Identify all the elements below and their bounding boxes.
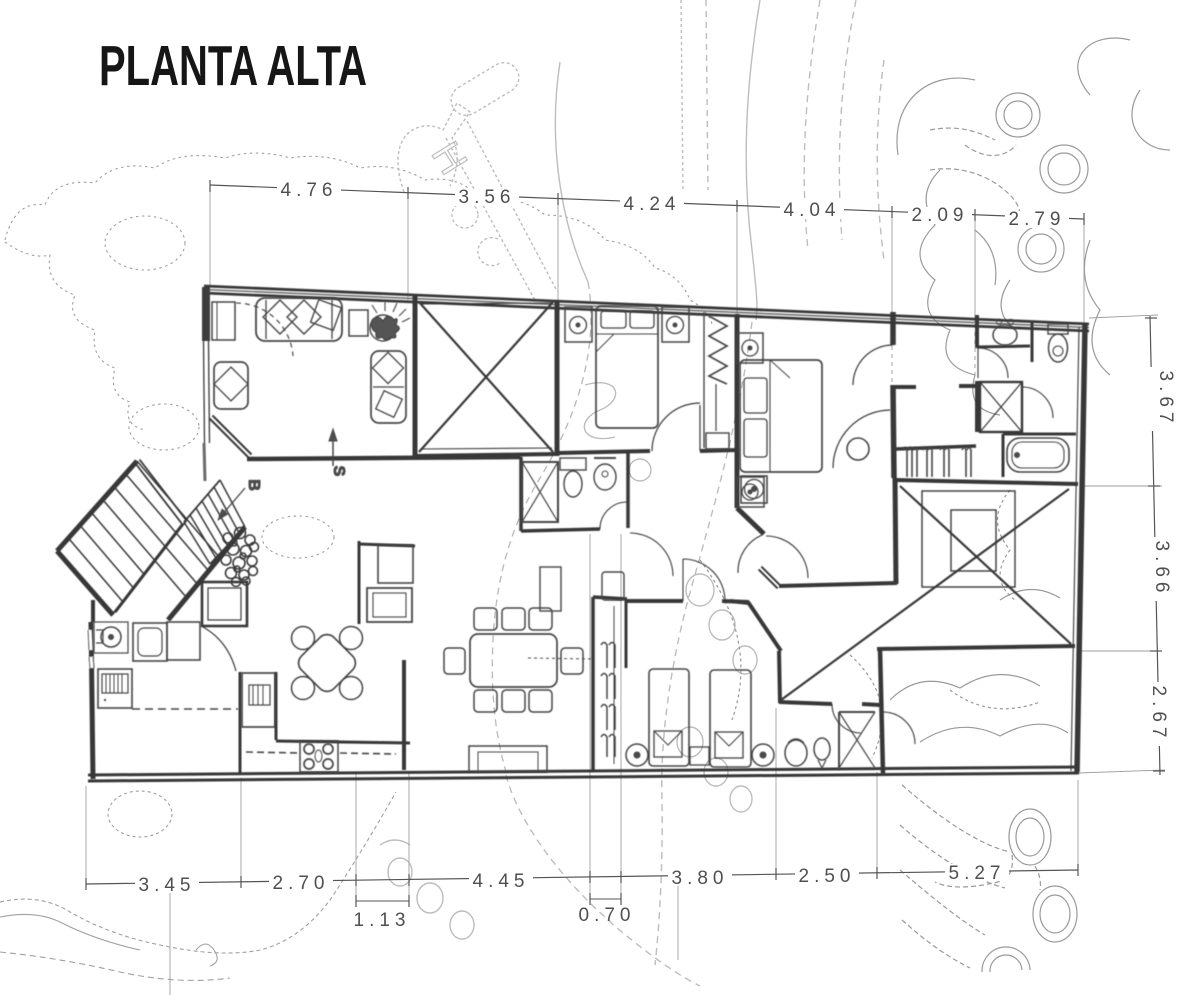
svg-text:PLANTA ALTA: PLANTA ALTA — [99, 34, 367, 98]
svg-text:2.09: 2.09 — [912, 205, 969, 226]
svg-text:4.04: 4.04 — [784, 200, 841, 221]
svg-text:2.79: 2.79 — [1009, 209, 1066, 230]
svg-text:1.13: 1.13 — [354, 910, 411, 931]
svg-text:3.56: 3.56 — [459, 187, 516, 208]
svg-text:3.67: 3.67 — [1155, 371, 1176, 428]
svg-text:2.50: 2.50 — [799, 866, 856, 887]
svg-text:3.66: 3.66 — [1151, 541, 1172, 598]
svg-text:0.70: 0.70 — [579, 905, 636, 926]
svg-text:4.45: 4.45 — [473, 871, 530, 892]
svg-text:2.67: 2.67 — [1148, 686, 1169, 743]
svg-text:5.27: 5.27 — [949, 863, 1006, 884]
svg-text:S: S — [330, 466, 347, 477]
svg-text:2.70: 2.70 — [273, 873, 330, 894]
svg-text:4.24: 4.24 — [624, 194, 681, 215]
svg-text:3.45: 3.45 — [139, 875, 196, 896]
svg-text:4.76: 4.76 — [281, 180, 338, 201]
svg-text:3.80: 3.80 — [672, 868, 729, 889]
svg-text:B: B — [245, 479, 262, 491]
